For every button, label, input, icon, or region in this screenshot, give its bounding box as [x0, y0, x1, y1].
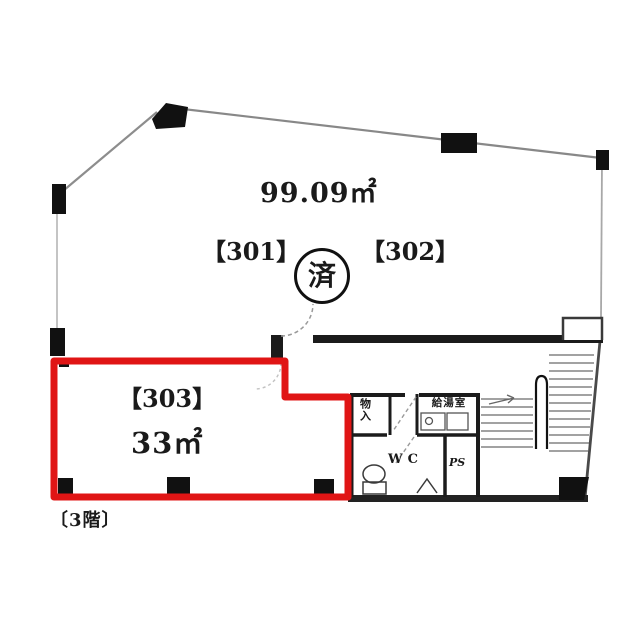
pillar-bottom-mid2 [314, 479, 334, 495]
pillar-apex [152, 103, 188, 129]
upper-unit-area-label: 99.09㎡ [260, 171, 378, 210]
floor-number-label: 〔3階〕 [50, 506, 121, 532]
pillar-bottomleft [58, 478, 73, 495]
interior-walls [256, 304, 603, 389]
storage-room-label: 物入 [359, 398, 371, 422]
duct-notch [563, 318, 602, 340]
pillar-bottom-mid1 [167, 477, 190, 494]
unit-302-label: 【302】 [361, 232, 459, 267]
wall-mid-end-post [271, 335, 283, 358]
wall-mid-horizontal [313, 335, 603, 343]
stairs-center-rail [536, 376, 547, 449]
wc-room-label: WC [388, 452, 423, 467]
toilet-tank-icon [363, 482, 386, 494]
unit-303-area-label: 33㎡ [131, 420, 203, 462]
occupied-stamp: 済 [294, 248, 350, 304]
wc-fixtures [363, 465, 437, 494]
pipe-space-label: PS [449, 456, 465, 469]
stairs-treads-right [549, 355, 594, 451]
pillar-topmid [441, 133, 477, 153]
pillar-topleft [52, 184, 66, 214]
unit-301-label: 【301】 [202, 232, 300, 267]
pillar-left-mid [50, 328, 65, 356]
wall-diagonal-topleft [57, 112, 157, 196]
kitchenette-room-label: 給湯室 [420, 395, 478, 410]
stove-counter-icon [447, 413, 468, 430]
wall-right-upper [601, 160, 602, 318]
unit-303-label: 【303】 [118, 379, 216, 414]
kitchenette-fixtures [421, 413, 468, 430]
door-swing-vestibule [393, 397, 416, 431]
wall-top [166, 107, 601, 158]
wall-bottom [348, 495, 588, 502]
floorplan-drawing [0, 0, 630, 630]
stairs [481, 355, 594, 451]
mop-basin-icon [417, 479, 437, 493]
stairs-treads-left [481, 399, 533, 447]
door-arc-303 [256, 363, 281, 389]
sink-basin-icon [426, 418, 433, 425]
door-arc-hall [281, 304, 313, 336]
floorplan-page: 99.09㎡ 【301】 済 【302】 【303】 33㎡ 物入 給湯室 WC… [0, 0, 630, 630]
pillar-bottomright [559, 477, 589, 500]
pillar-topright [596, 150, 609, 170]
toilet-bowl-icon [363, 465, 385, 483]
